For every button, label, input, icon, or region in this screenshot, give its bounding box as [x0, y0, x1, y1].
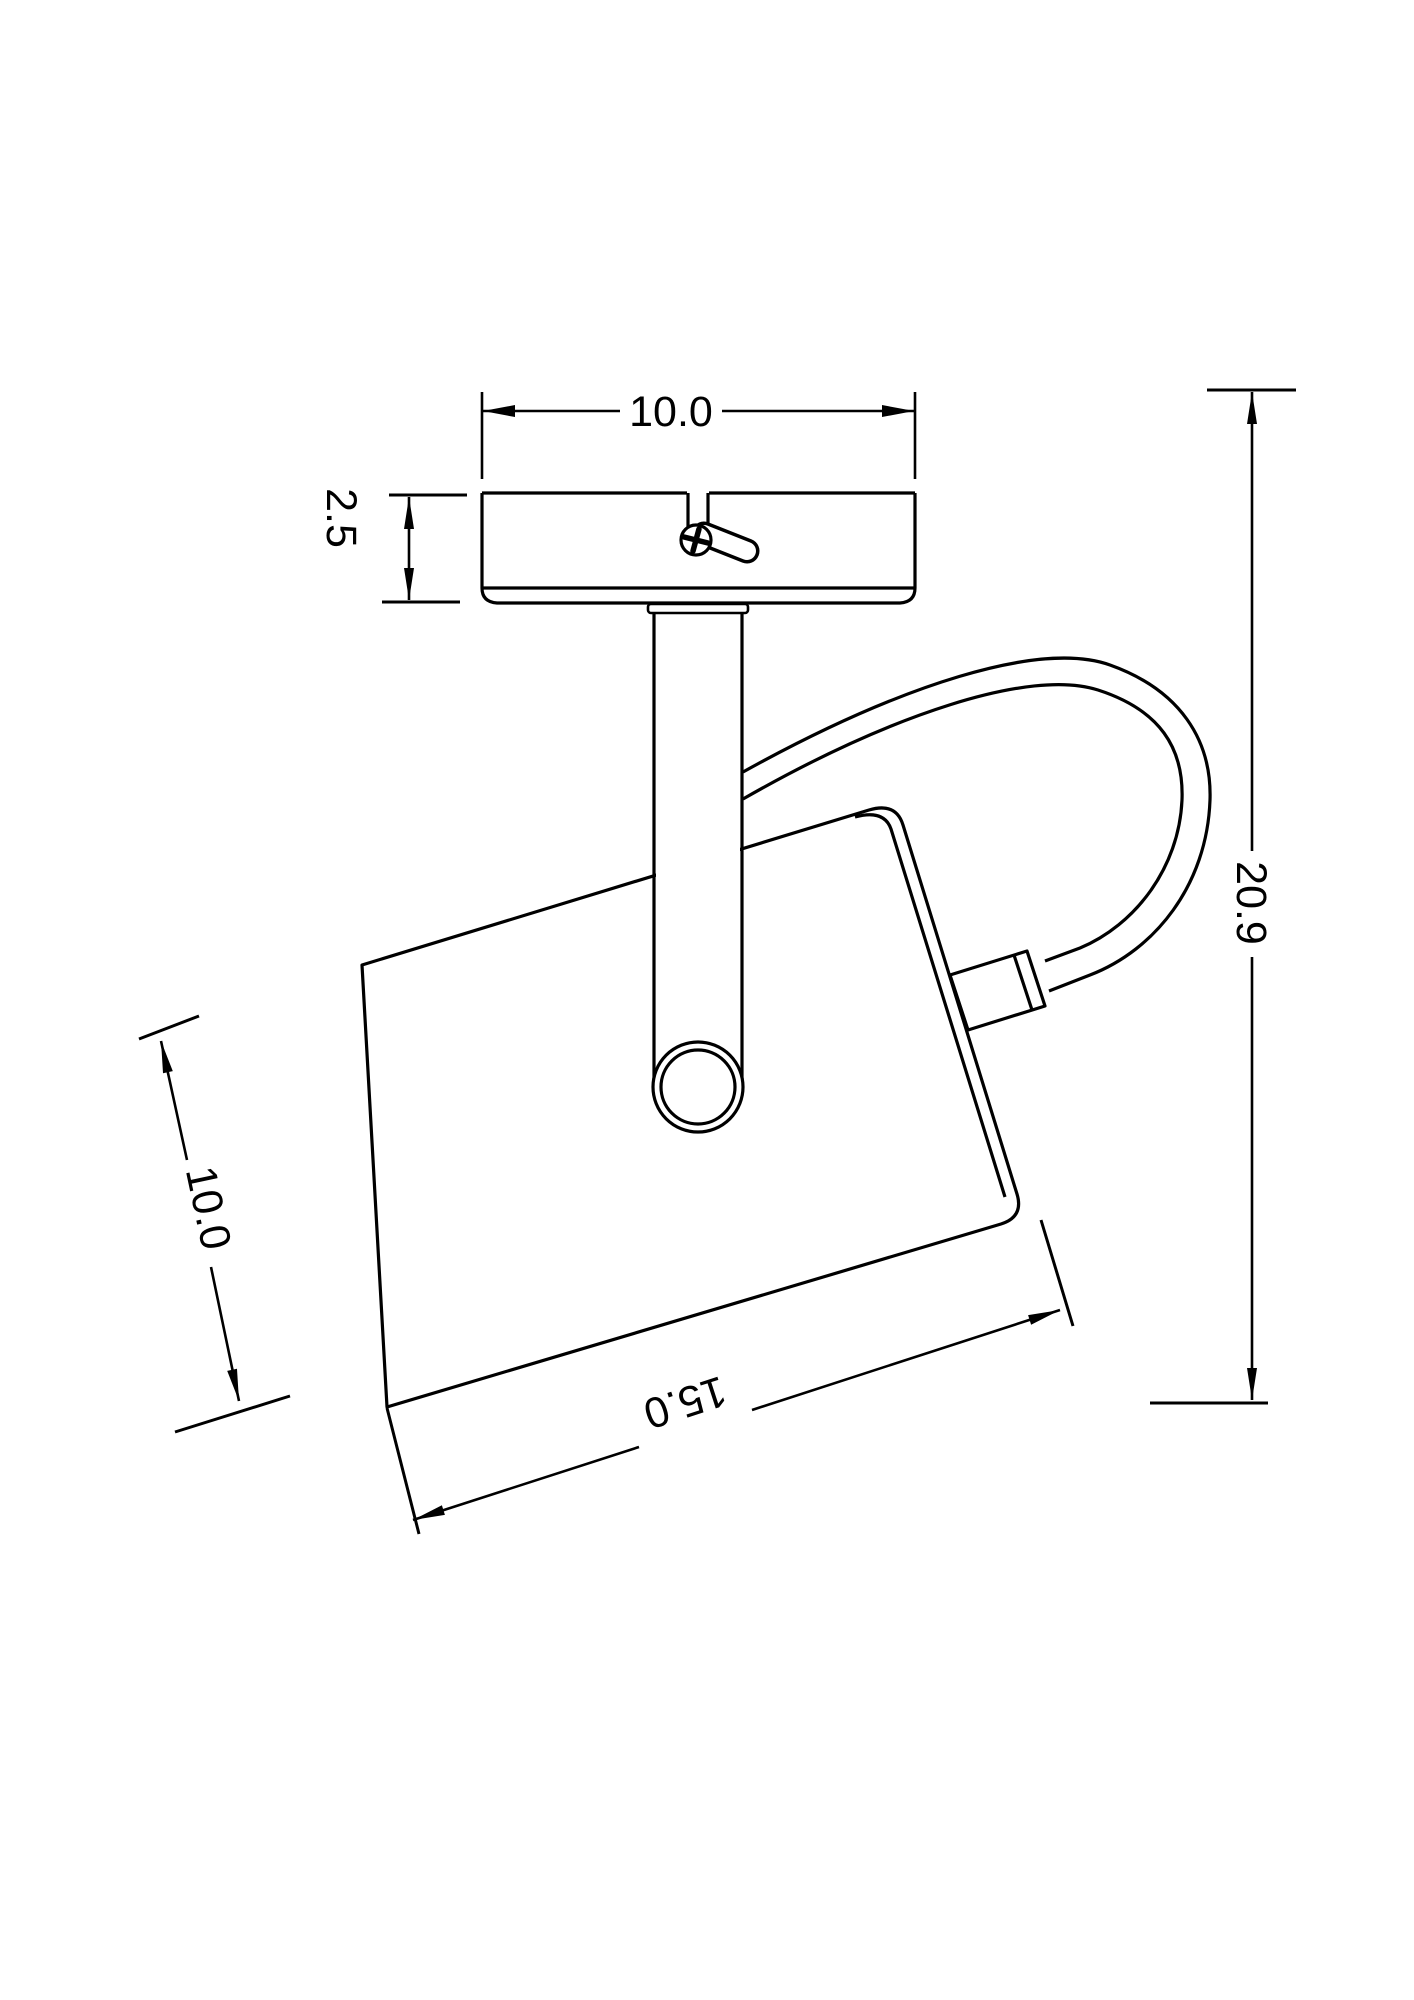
head-depth-dimension: 10.0: [139, 1016, 290, 1432]
head-depth-arrow-down: [227, 1369, 239, 1401]
stem-mask: [656, 606, 740, 1076]
cable-plug-body: [950, 951, 1045, 1030]
plate-thickness-arrow-down: [404, 568, 414, 600]
pivot-knob: [653, 1042, 743, 1132]
stem-arm: [648, 604, 748, 1087]
overall-height-label: 20.9: [1227, 861, 1275, 945]
head-depth-arrow-up: [161, 1041, 173, 1073]
plate-thickness-label: 2.5: [317, 488, 365, 548]
cable-plug: [950, 951, 1045, 1030]
plate-thickness-arrow-up: [404, 497, 414, 529]
head-length-arrow-left: [413, 1505, 445, 1520]
overall-height-arrow-up: [1247, 392, 1257, 424]
head-length-arrow-right: [1028, 1310, 1060, 1325]
pivot-knob-outer: [653, 1042, 743, 1132]
spotlight-dimension-drawing: 10.0 2.5 20.9 15.0 10.0: [0, 0, 1414, 2000]
technical-drawing-page: 10.0 2.5 20.9 15.0 10.0: [0, 0, 1414, 2000]
plate-width-label: 10.0: [629, 388, 713, 436]
plate-width-arrow-right: [882, 405, 914, 417]
plate-width-arrow-left: [483, 405, 515, 417]
stem-flange: [648, 604, 748, 613]
plate-thickness-dimension: 2.5: [317, 488, 467, 602]
head-length-label: 15.0: [638, 1366, 732, 1438]
overall-height-arrow-down: [1247, 1368, 1257, 1400]
plate-thickness-ticks: [382, 495, 467, 602]
overall-height-dimension: 20.9: [1150, 390, 1296, 1403]
plate-width-dimension: 10.0: [482, 388, 915, 479]
head-depth-label: 10.0: [176, 1162, 240, 1254]
